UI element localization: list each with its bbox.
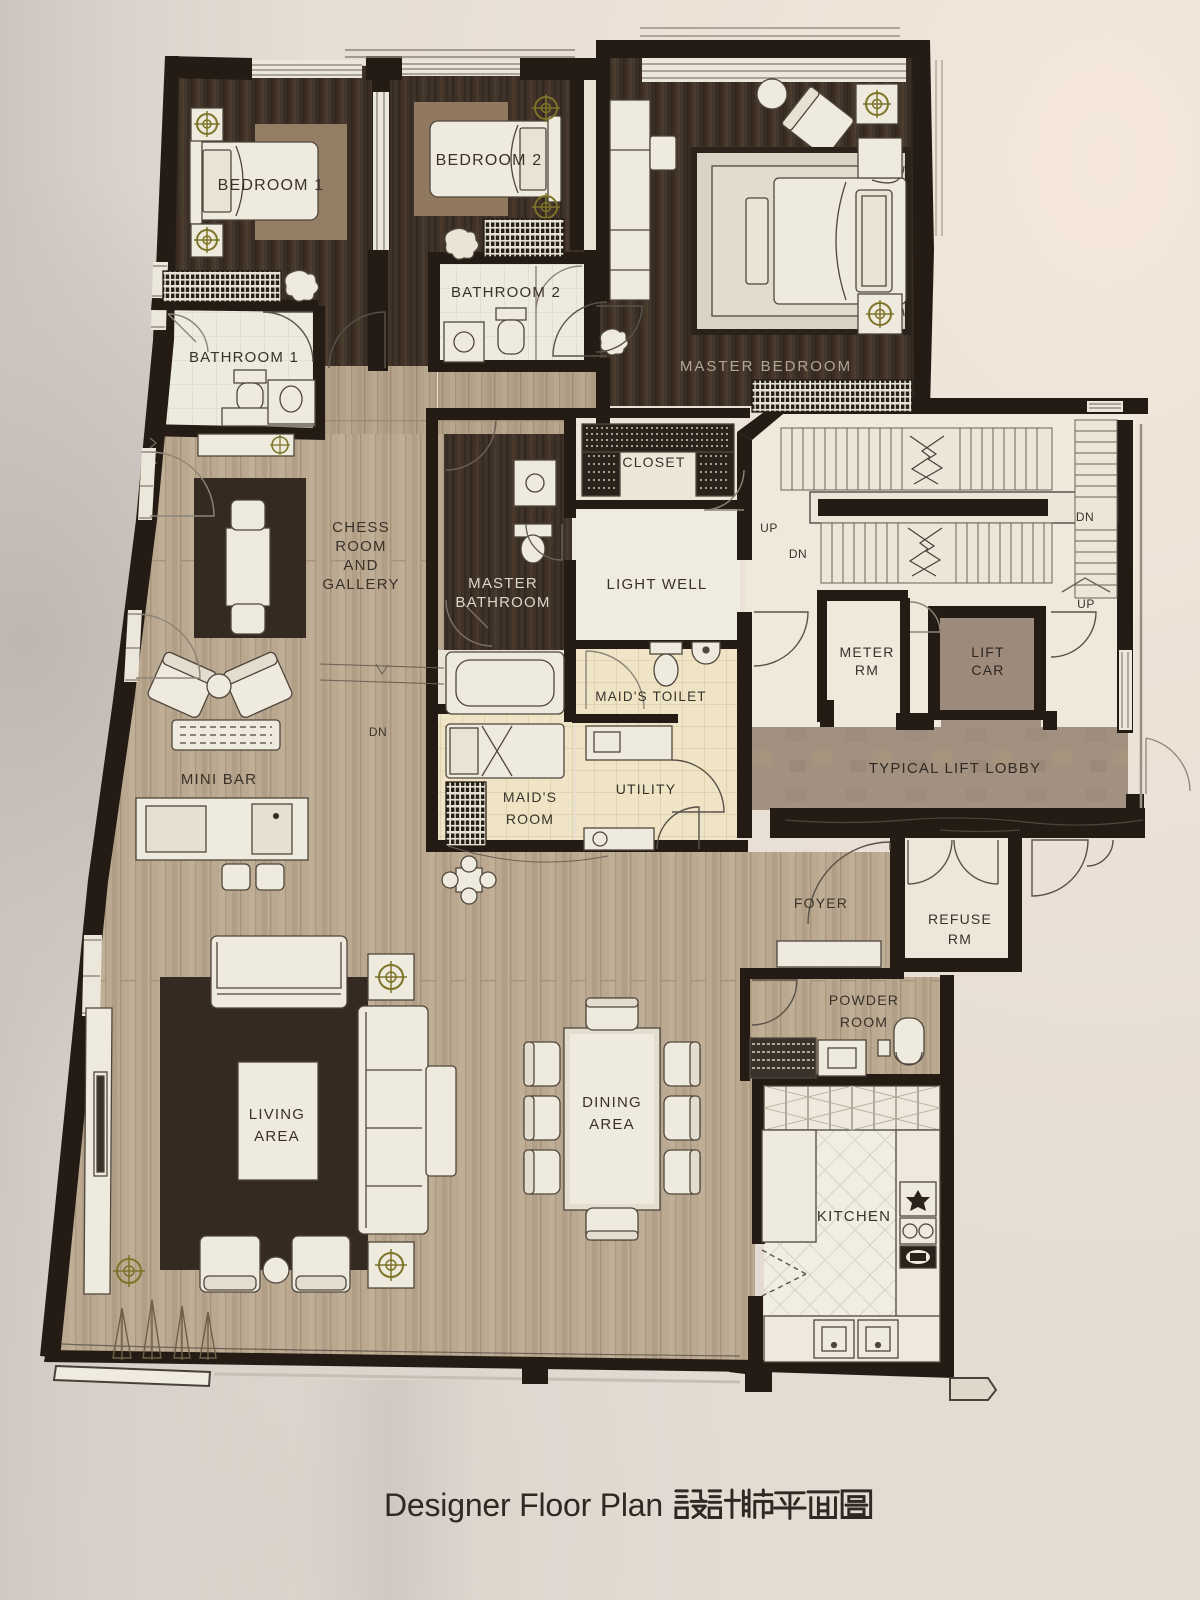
svg-text:BATHROOM: BATHROOM (455, 594, 550, 611)
svg-text:LIGHT WELL: LIGHT WELL (607, 576, 708, 593)
svg-text:Designer Floor Plan: Designer Floor Plan (384, 1487, 663, 1523)
svg-text:GALLERY: GALLERY (322, 576, 399, 593)
svg-text:DN: DN (1076, 510, 1094, 524)
svg-text:CHESS: CHESS (332, 519, 390, 536)
svg-text:MAID'S: MAID'S (503, 789, 557, 805)
svg-text:BEDROOM 2: BEDROOM 2 (436, 152, 543, 169)
svg-text:METER: METER (840, 644, 895, 660)
svg-text:UP: UP (760, 521, 778, 535)
svg-text:MINI BAR: MINI BAR (181, 771, 257, 788)
svg-text:BEDROOM 1: BEDROOM 1 (218, 177, 325, 194)
svg-text:MASTER: MASTER (468, 575, 538, 592)
svg-text:REFUSE: REFUSE (928, 911, 992, 927)
svg-text:MAID'S TOILET: MAID'S TOILET (595, 689, 706, 704)
svg-text:UP: UP (1077, 597, 1095, 611)
svg-text:POWDER: POWDER (829, 992, 899, 1008)
svg-text:ROOM: ROOM (840, 1014, 888, 1030)
svg-text:RM: RM (855, 662, 879, 678)
svg-text:UTILITY: UTILITY (616, 781, 677, 797)
svg-text:KITCHEN: KITCHEN (817, 1208, 891, 1225)
svg-text:LIFT: LIFT (971, 644, 1005, 660)
svg-text:AREA: AREA (589, 1116, 635, 1133)
svg-text:RM: RM (948, 931, 972, 947)
svg-text:TYPICAL LIFT LOBBY: TYPICAL LIFT LOBBY (869, 760, 1042, 777)
svg-text:ROOM: ROOM (335, 538, 386, 555)
svg-text:CAR: CAR (971, 662, 1004, 678)
svg-text:CLOSET: CLOSET (622, 454, 685, 470)
svg-text:AREA: AREA (254, 1128, 300, 1145)
svg-text:DINING: DINING (582, 1094, 642, 1111)
svg-text:LIVING: LIVING (249, 1106, 305, 1123)
svg-text:BATHROOM 1: BATHROOM 1 (189, 349, 299, 366)
svg-text:AND: AND (343, 557, 378, 574)
svg-text:ROOM: ROOM (506, 811, 554, 827)
svg-text:BATHROOM 2: BATHROOM 2 (451, 284, 561, 301)
svg-text:DN: DN (369, 725, 387, 739)
svg-text:FOYER: FOYER (794, 895, 848, 911)
svg-text:DN: DN (789, 547, 807, 561)
svg-text:MASTER BEDROOM: MASTER BEDROOM (680, 358, 852, 375)
